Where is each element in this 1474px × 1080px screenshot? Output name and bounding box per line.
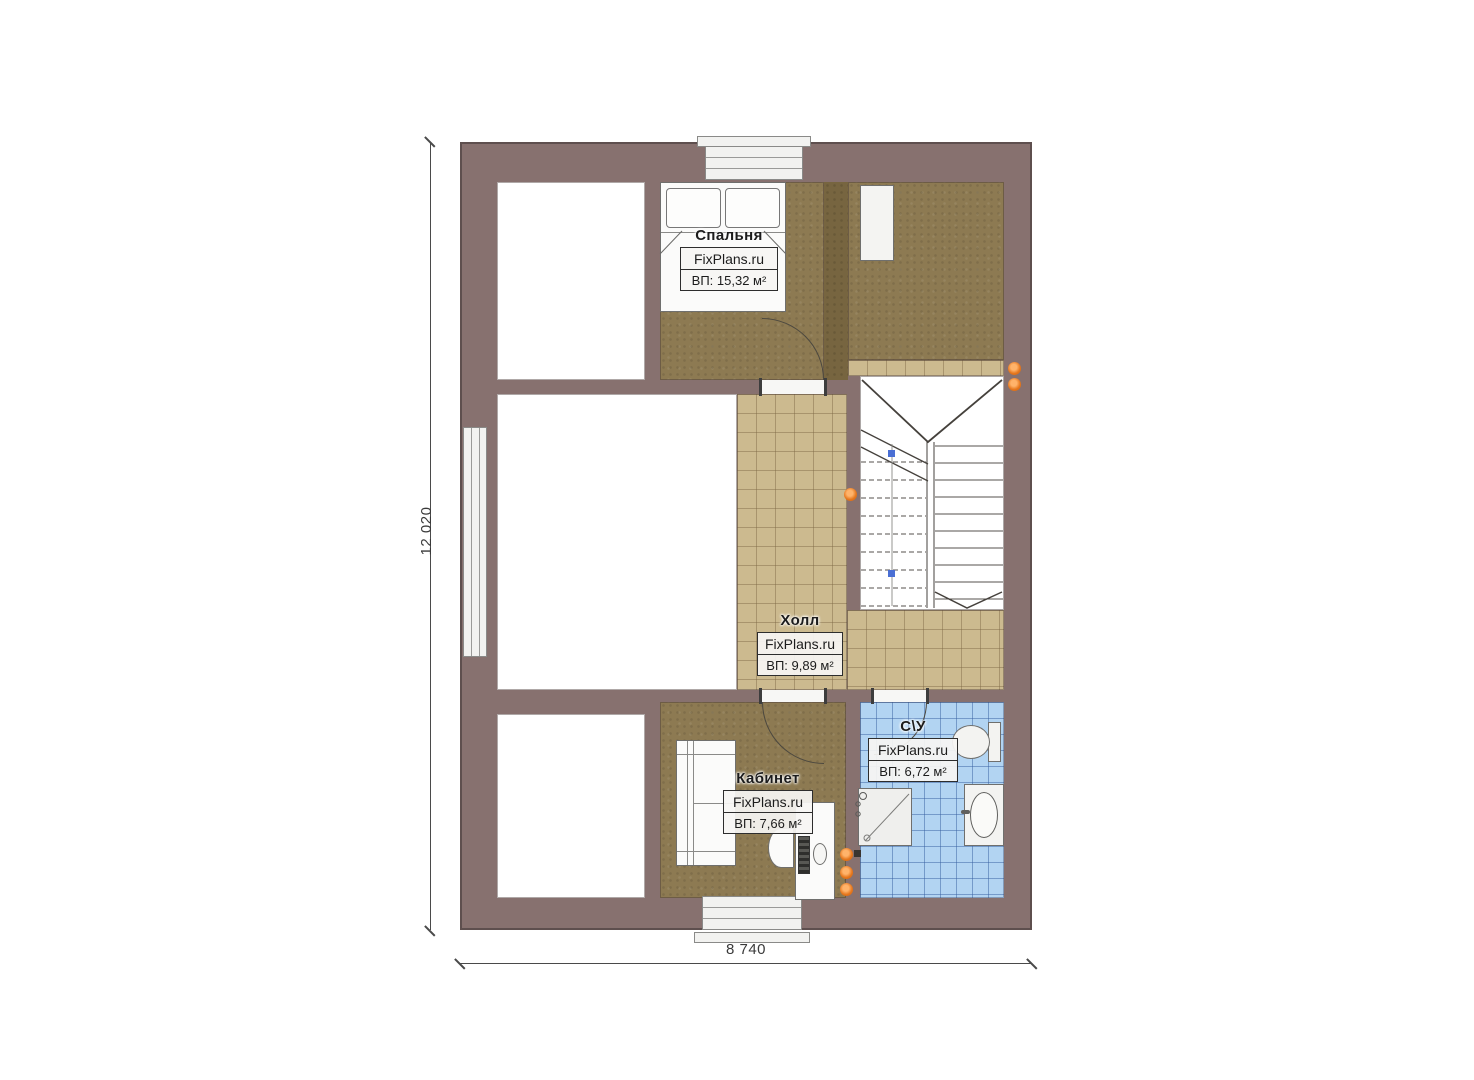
wall-light-icon: [1008, 362, 1021, 375]
watermark: FixPlans.ru: [681, 248, 777, 269]
dimension-line-horizontal: [460, 963, 1032, 964]
mouse: [813, 843, 827, 865]
monitor: [798, 836, 810, 874]
wall-light-icon: [840, 883, 853, 896]
pillow: [725, 188, 780, 228]
wall-light-icon: [844, 488, 857, 501]
shower-tray: [858, 788, 912, 846]
area-label: ВП: 15,32 м²: [681, 269, 777, 290]
hall-floor-extension: [847, 610, 1004, 690]
window-bottom: [702, 896, 802, 930]
sink-basin: [970, 792, 998, 838]
watermark: FixPlans.ru: [758, 633, 842, 654]
area-label: ВП: 6,72 м²: [869, 760, 957, 781]
junction-box-icon: [854, 850, 861, 857]
stair-landing-floor: [848, 360, 1004, 376]
stairwell: [860, 376, 1004, 610]
office-chair: [768, 828, 794, 868]
bedroom-door-opening: [762, 380, 824, 394]
room-title-hall: Холл: [757, 612, 843, 629]
wall-light-icon: [1008, 378, 1021, 391]
room-bottom-left: [497, 714, 645, 898]
bathroom-door-opening: [874, 690, 927, 702]
office-label: Кабинет FixPlans.ru ВП: 7,66 м²: [723, 770, 813, 834]
room-title-office: Кабинет: [723, 770, 813, 787]
window-top: [705, 146, 803, 180]
hall-label: Холл FixPlans.ru ВП: 9,89 м²: [757, 612, 843, 676]
area-label: ВП: 7,66 м²: [724, 812, 812, 833]
area-label: ВП: 9,89 м²: [758, 654, 842, 675]
bathroom-label: С\У FixPlans.ru ВП: 6,72 м²: [868, 718, 958, 782]
wall-light-icon: [840, 866, 853, 879]
dimension-horizontal-label: 8 740: [460, 941, 1032, 958]
watermark: FixPlans.ru: [869, 739, 957, 760]
room-top-left: [497, 182, 645, 380]
floor-plan: Спальня FixPlans.ru ВП: 15,32 м² Холл Fi…: [460, 142, 1032, 930]
sink-tap: [961, 810, 970, 814]
pillow: [666, 188, 721, 228]
office-door-opening: [762, 690, 824, 702]
bedroom-floor-shadow: [824, 182, 848, 380]
floor-plan-page: Спальня FixPlans.ru ВП: 15,32 м² Холл Fi…: [0, 0, 1474, 1080]
room-title-bathroom: С\У: [868, 718, 958, 735]
room-title-bedroom: Спальня: [680, 227, 778, 244]
bedroom-label: Спальня FixPlans.ru ВП: 15,32 м²: [680, 227, 778, 291]
window-left: [463, 427, 487, 657]
room-mid-left: [497, 394, 737, 690]
watermark: FixPlans.ru: [724, 791, 812, 812]
dimension-vertical-label: 12 020: [418, 496, 436, 566]
wall-light-icon: [840, 848, 853, 861]
closet: [860, 185, 894, 261]
